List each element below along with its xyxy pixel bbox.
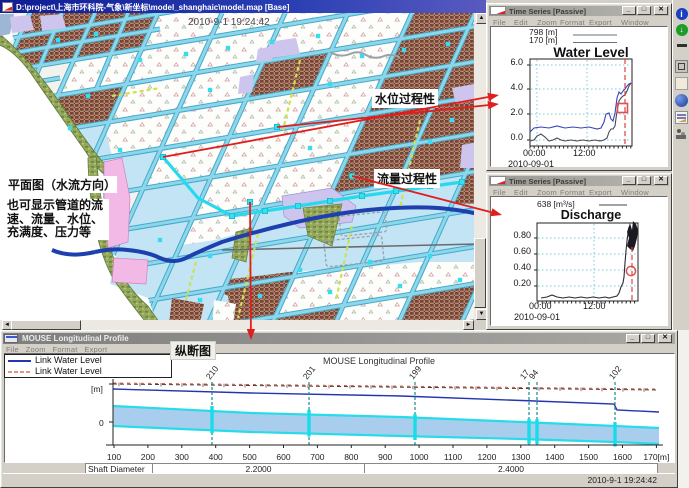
svg-text:1600: 1600: [613, 452, 632, 462]
svg-text:102: 102: [607, 364, 624, 382]
svg-text:1400: 1400: [545, 452, 564, 462]
svg-text:1500: 1500: [579, 452, 598, 462]
svg-text:500: 500: [243, 452, 257, 462]
svg-text:0: 0: [99, 418, 104, 428]
svg-text:300: 300: [175, 452, 189, 462]
svg-text:2010-9-1 19:24:42: 2010-9-1 19:24:42: [188, 17, 270, 28]
svg-text:94: 94: [527, 367, 541, 381]
svg-text:170[m]: 170[m]: [643, 452, 669, 462]
svg-text:1000: 1000: [410, 452, 429, 462]
svg-text:199: 199: [407, 364, 424, 382]
svg-text:100: 100: [107, 452, 121, 462]
svg-text:1200: 1200: [477, 452, 496, 462]
svg-text:1300: 1300: [511, 452, 530, 462]
svg-text:[m]: [m]: [91, 384, 103, 394]
svg-text:400: 400: [209, 452, 223, 462]
svg-text:800: 800: [344, 452, 358, 462]
svg-text:600: 600: [276, 452, 290, 462]
svg-text:200: 200: [141, 452, 155, 462]
svg-text:1100: 1100: [444, 452, 463, 462]
svg-text:210: 210: [204, 364, 221, 382]
svg-text:201: 201: [301, 364, 318, 382]
svg-text:700: 700: [310, 452, 324, 462]
svg-text:900: 900: [378, 452, 392, 462]
